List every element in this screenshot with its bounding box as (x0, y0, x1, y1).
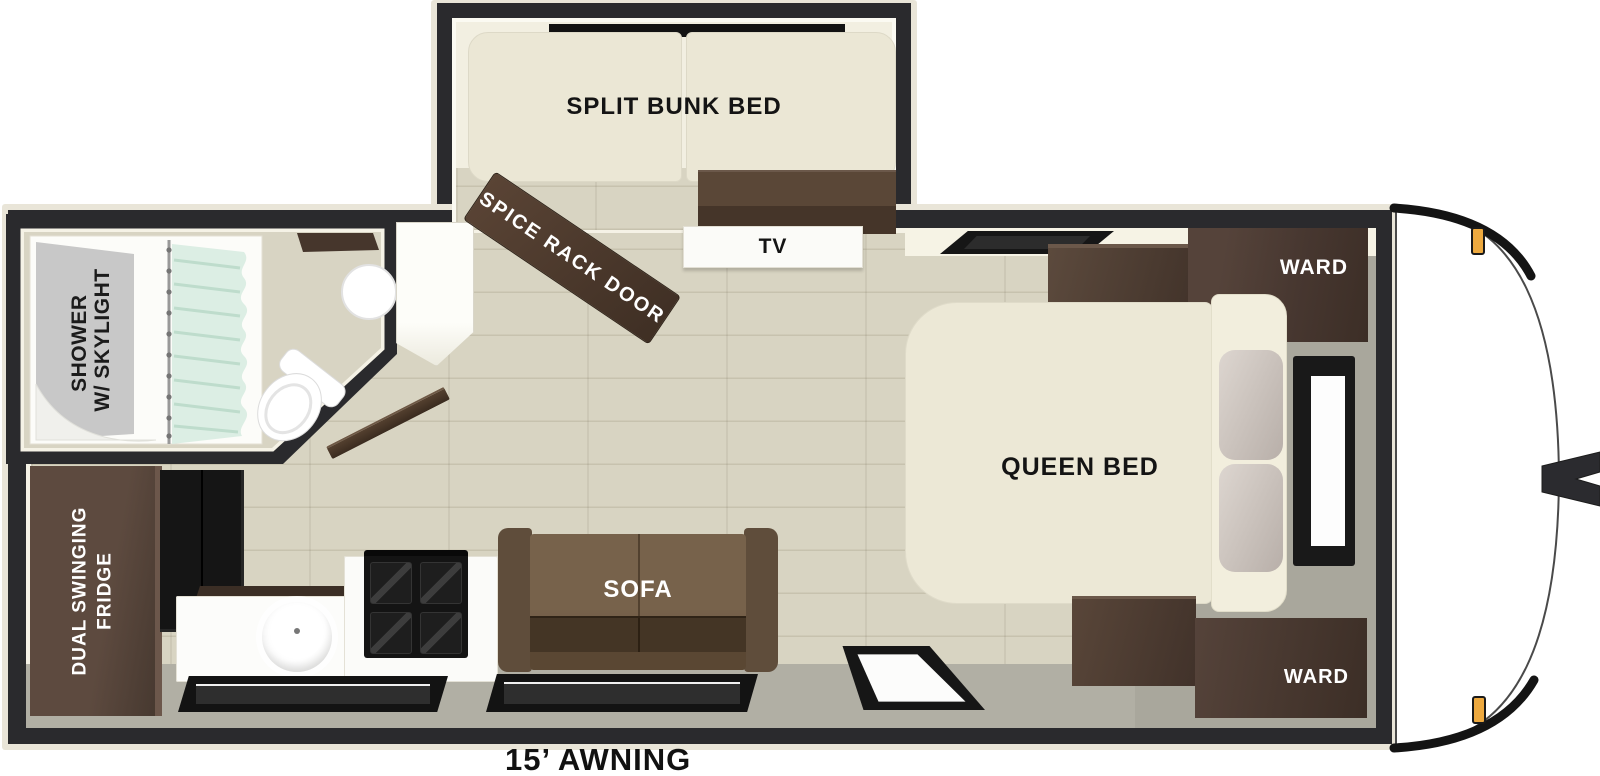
marker-light-top (1472, 228, 1484, 254)
sofa-arm-right (744, 528, 778, 672)
front-cap-body (1396, 210, 1559, 746)
wardrobe-bottom-label: WARD (1284, 666, 1349, 689)
kitchen-window (178, 676, 448, 712)
burner (370, 612, 412, 654)
fridge: DUAL SWINGING FRIDGE (30, 466, 162, 716)
shower-curtain (172, 244, 247, 444)
tv-label: TV (759, 235, 788, 259)
tv-panel: TV (683, 226, 863, 268)
shower-label: SHOWER W/ SKYLIGHT (68, 268, 114, 411)
bunk-label: SPLIT BUNK BED (544, 92, 804, 122)
kitchen-sink (262, 602, 332, 672)
vanity-counter (297, 233, 379, 252)
pillow (1219, 350, 1283, 460)
burner (420, 562, 462, 604)
sofa-label: SOFA (560, 576, 716, 604)
bedroom-window (1293, 356, 1355, 566)
bedroom-window-pane (1311, 376, 1345, 546)
bunk-dresser (698, 170, 896, 234)
sofa-window (486, 674, 758, 712)
cooktop (364, 550, 468, 658)
sofa-base (530, 652, 746, 670)
awning-label: 15’ AWNING (505, 742, 765, 776)
bathroom-sink (342, 265, 396, 319)
fridge-label: DUAL SWINGING FRIDGE (68, 471, 117, 711)
sofa-window-pane (504, 682, 740, 704)
wardrobe-top-label: WARD (1280, 256, 1348, 280)
bedroom-dresser-bottom (1072, 596, 1196, 686)
pillow (1219, 464, 1283, 572)
sofa-arm-left (498, 528, 532, 672)
entry-door (838, 646, 988, 710)
floorplan-canvas: SPLIT BUNK BED SHOWER W/ SKYLIG (0, 0, 1600, 776)
sofa-seats (530, 616, 746, 656)
kitchen-window-pane (196, 684, 430, 704)
queen-bed-label: QUEEN BED (950, 452, 1210, 482)
wardrobe-bottom: WARD (1195, 618, 1367, 718)
burner (370, 562, 412, 604)
marker-light-bottom (1473, 697, 1485, 723)
front-cap (1368, 198, 1600, 770)
burner (420, 612, 462, 654)
